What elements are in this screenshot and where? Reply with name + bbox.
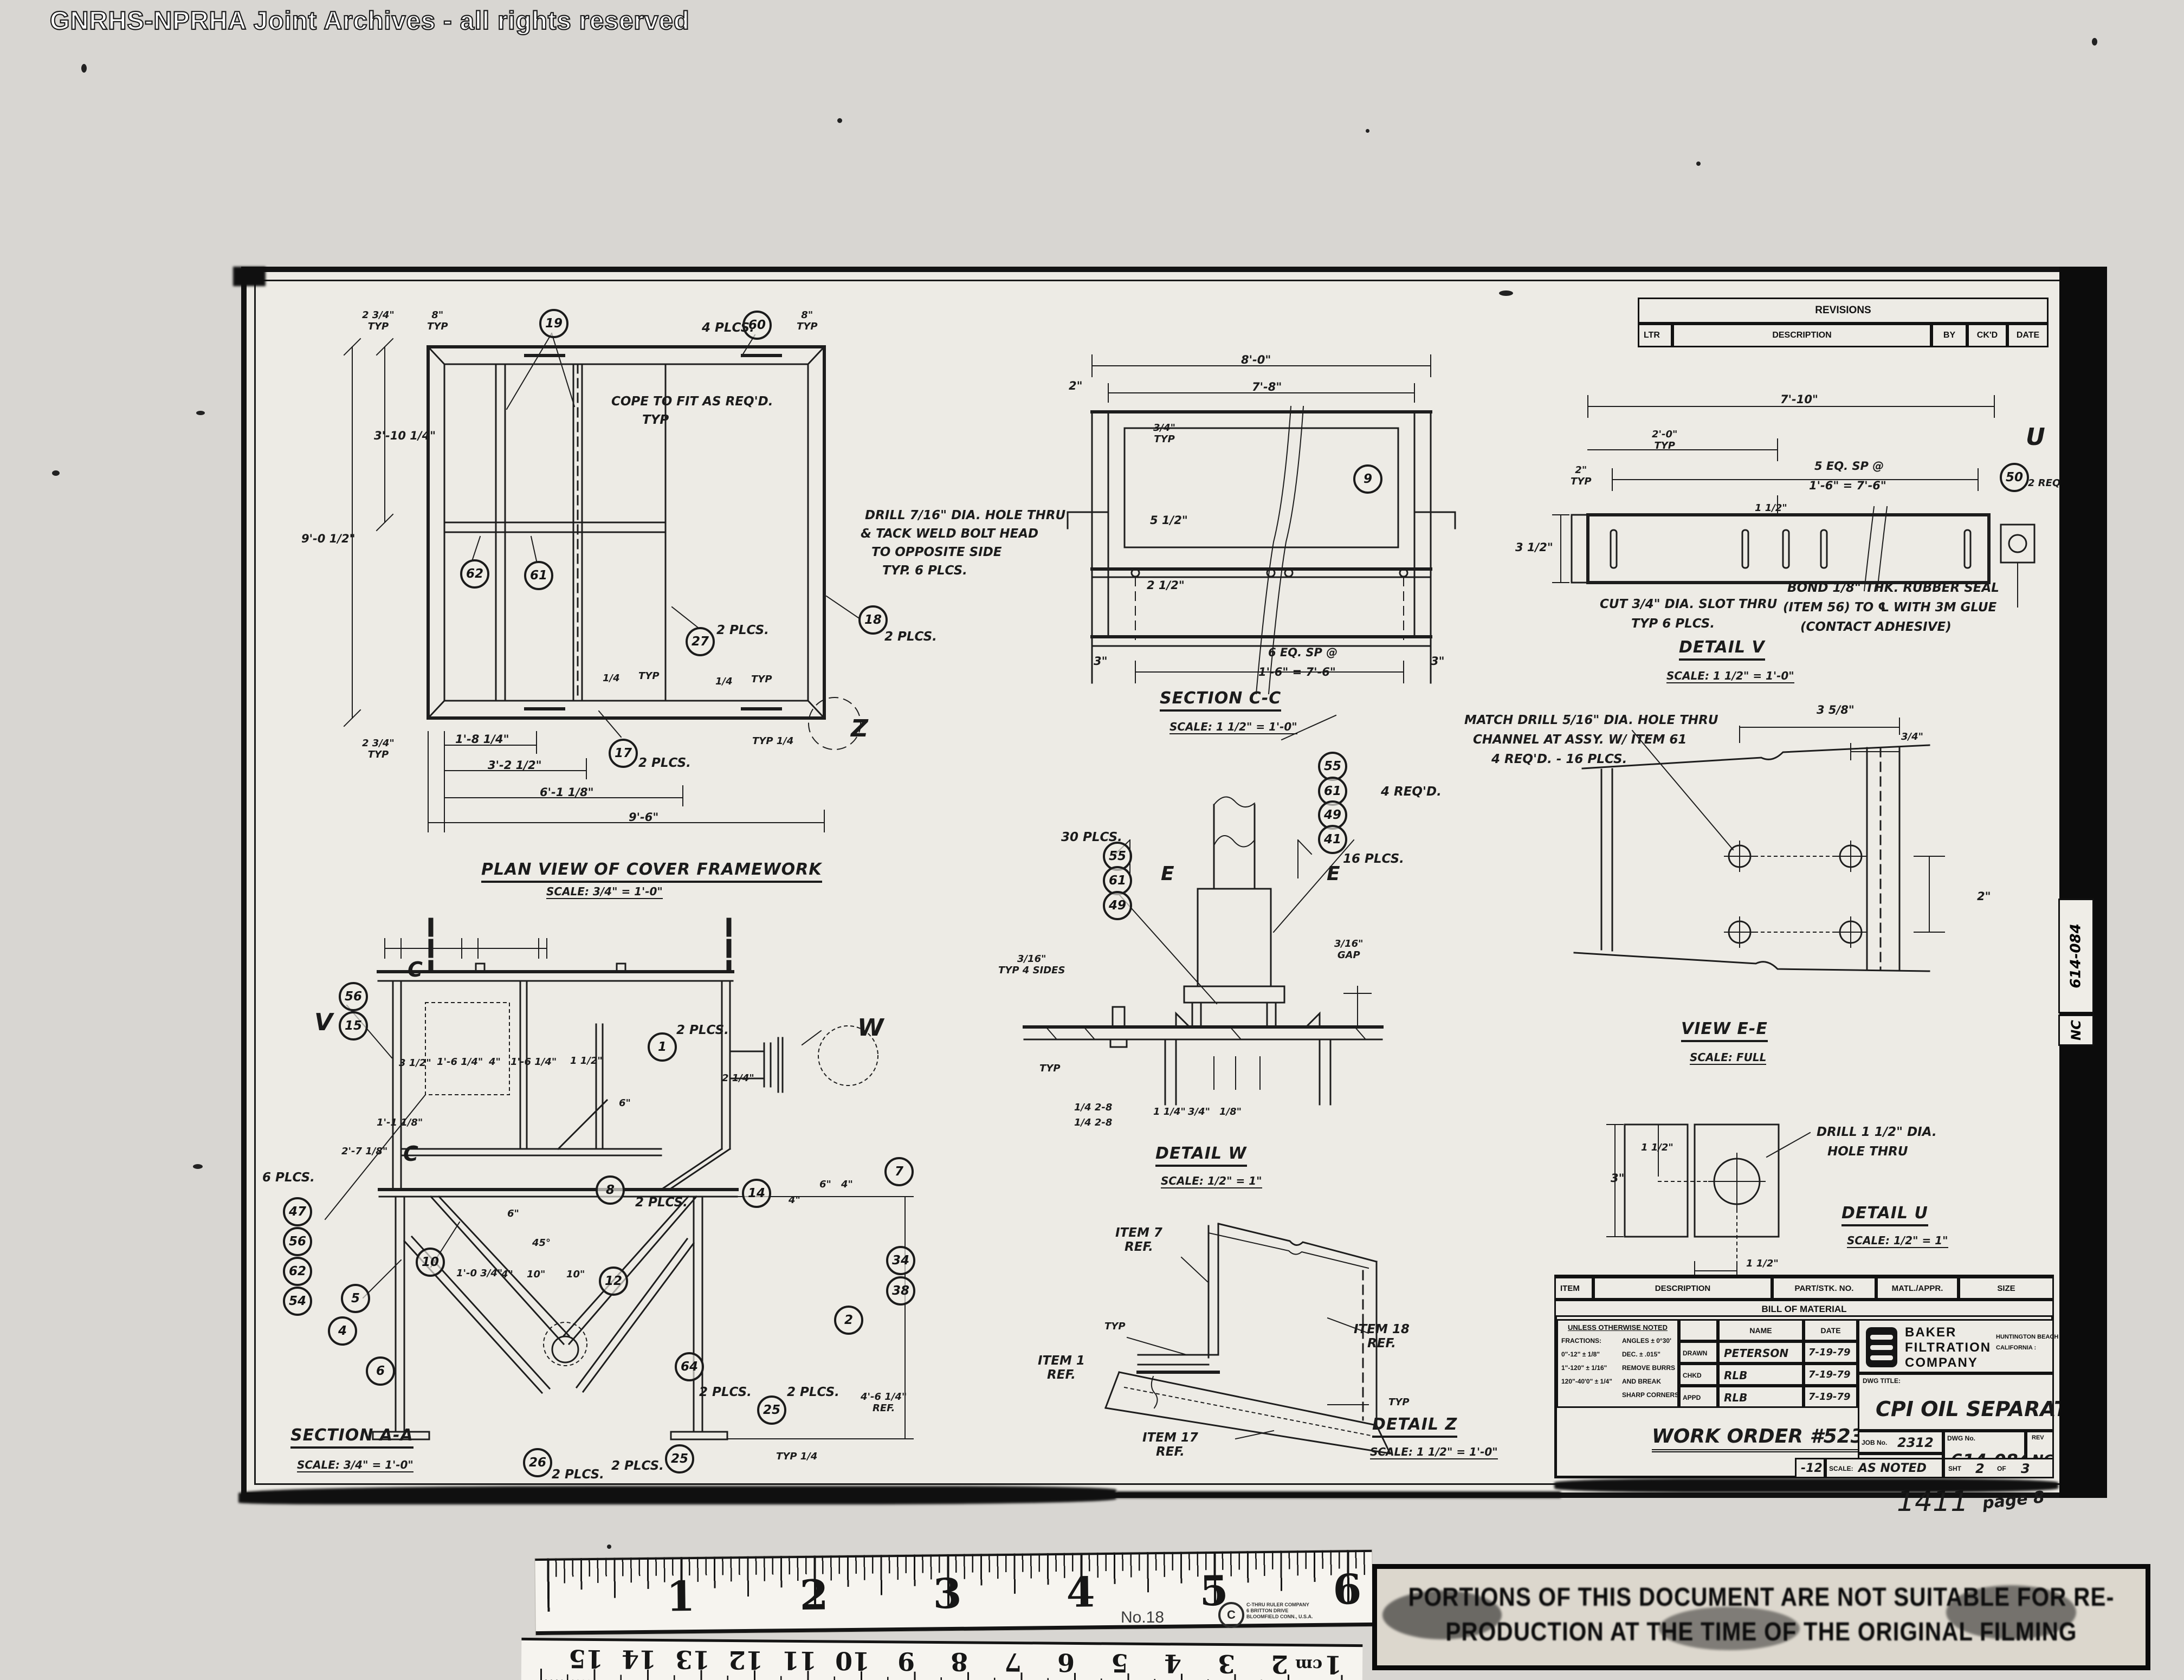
balloon-50-num: 50 xyxy=(2006,470,2023,484)
archive-watermark: GNRHS-NPRHA Joint Archives - all rights … xyxy=(50,5,690,35)
section-aa-caption: SECTION A-A xyxy=(290,1426,413,1449)
drawn-label: DRAWN xyxy=(1683,1349,1707,1357)
label-2plcs: 2 PLCS. xyxy=(699,1385,752,1399)
balloon-64: 64 xyxy=(675,1352,704,1381)
dim: 9'-0 1/2" xyxy=(301,532,356,545)
detail-v-scale: SCALE: 1 1/2" = 1'-0" xyxy=(1666,670,1794,683)
weld-label: TYP 1/4 xyxy=(752,736,793,747)
balloon-26-num: 26 xyxy=(529,1456,546,1470)
edge-dwg-number-text: 614-084 xyxy=(2068,923,2084,988)
balloon-18-num: 18 xyxy=(864,613,882,627)
sht-value: 2 xyxy=(1975,1462,1985,1477)
edge-rev: NC xyxy=(2058,1015,2094,1046)
speck xyxy=(837,118,842,123)
grid-drawn: DRAWN xyxy=(1679,1341,1718,1364)
dim: 45° xyxy=(532,1238,551,1249)
cthru-company-text: C-THRU RULER COMPANY 6 BRITTON DRIVE BLO… xyxy=(1246,1602,1313,1619)
dim: 6" xyxy=(507,1209,519,1220)
dim: 4" xyxy=(789,1195,800,1206)
scale-box: SCALE: AS NOTED xyxy=(1825,1458,1943,1478)
dim: 10" xyxy=(566,1269,585,1281)
company-city: HUNTINGTON BEACH xyxy=(1996,1334,2058,1340)
scan-smear xyxy=(1554,1478,2058,1492)
grid-appd-date: 7-19-79 xyxy=(1804,1386,1858,1408)
grid-appd-name: RLB xyxy=(1718,1386,1804,1408)
balloon-47-num: 47 xyxy=(289,1205,306,1219)
dim: 6" xyxy=(619,1098,631,1109)
balloon-55b-num: 55 xyxy=(1324,759,1341,773)
balloon-14-num: 14 xyxy=(748,1186,765,1200)
balloon-15: 15 xyxy=(339,1011,368,1041)
balloon-61-num: 61 xyxy=(1109,874,1126,888)
inch-1: 1 xyxy=(664,1572,697,1621)
balloon-41-num: 41 xyxy=(1324,832,1341,847)
balloon-2: 2 xyxy=(834,1306,863,1335)
weld-typ: TYP xyxy=(1388,1397,1410,1408)
label-2plcs: 2 PLCS. xyxy=(787,1385,839,1399)
item1-label: ITEM 1REF. xyxy=(1038,1354,1085,1382)
tolerance-box: UNLESS OTHERWISE NOTED FRACTIONS: ANGLES… xyxy=(1556,1319,1679,1408)
col-ckd: CK'D xyxy=(1977,331,1998,340)
balloon-54-num: 54 xyxy=(289,1294,306,1308)
balloon-61-num: 61 xyxy=(530,568,547,583)
dim: 2" xyxy=(1069,379,1083,392)
dim: 1'-1 1/8" xyxy=(377,1117,423,1129)
bom-col-size: SIZE xyxy=(1959,1277,2054,1300)
col-by: BY xyxy=(1943,331,1955,340)
balloon-38: 38 xyxy=(886,1276,915,1306)
cut-note-line2: TYP 6 PLCS. xyxy=(1631,617,1715,631)
drill-note-line4: TYP. 6 PLCS. xyxy=(882,564,967,578)
note-cope-typ: TYP xyxy=(642,413,669,427)
bond-note-line2: (ITEM 56) TO ℄ WITH 3M GLUE xyxy=(1783,600,1996,615)
revisions-header: REVISIONS xyxy=(1638,298,2049,324)
balloon-19: 19 xyxy=(539,309,568,338)
cthru-line3: BLOOMFIELD CONN., U.S.A. xyxy=(1246,1614,1313,1620)
speck xyxy=(1499,290,1513,296)
margin-note: -12 xyxy=(1801,1462,1823,1475)
scan-smear xyxy=(233,267,266,286)
balloon-56: 56 xyxy=(339,982,368,1011)
balloon-12: 12 xyxy=(599,1267,628,1296)
note-cope: COPE TO FIT AS REQ'D. xyxy=(611,395,773,409)
weld-typ: TYP xyxy=(1039,1063,1061,1075)
revisions-col-desc: DESCRIPTION xyxy=(1672,324,1931,347)
dim: 1/8" xyxy=(1219,1107,1242,1118)
balloon-7-num: 7 xyxy=(895,1165,903,1179)
dwg-title-box: DWG TITLE: CPI OIL SEPARATOR xyxy=(1858,1373,2054,1431)
dim: 7'-10" xyxy=(1780,393,1818,406)
appd-label: APPD xyxy=(1683,1394,1701,1401)
revisions-col-ltr: LTR xyxy=(1638,324,1672,347)
dim: 6" xyxy=(819,1179,831,1191)
scanned-drawing-page: GNRHS-NPRHA Joint Archives - all rights … xyxy=(0,0,2184,1680)
revisions-title: REVISIONS xyxy=(1815,305,1871,316)
col-date: DATE xyxy=(2017,331,2039,340)
balloon-14: 14 xyxy=(742,1179,771,1208)
dim: 2'-7 1/8" xyxy=(341,1146,387,1158)
drawn-name: PETERSON xyxy=(1724,1347,1788,1360)
dim: 2'-0"TYP xyxy=(1652,429,1677,451)
chkd-label: CHKD xyxy=(1683,1372,1702,1379)
edge-rev-text: NC xyxy=(2069,1020,2084,1041)
inch-6: 6 xyxy=(1331,1565,1364,1614)
tol-fractions: FRACTIONS: xyxy=(1561,1337,1601,1345)
balloon-56b-num: 56 xyxy=(289,1235,306,1249)
balloon-62b: 62 xyxy=(283,1257,312,1286)
inch-ruler: 1 2 3 4 5 6 xyxy=(535,1550,1372,1635)
dim: 1'-6 1/4" xyxy=(511,1057,557,1068)
balloon-27-num: 27 xyxy=(692,635,709,649)
appd-date: 7-19-79 xyxy=(1808,1392,1851,1403)
label-6plcs: 6 PLCS. xyxy=(262,1171,315,1185)
view-ee-scale: SCALE: FULL xyxy=(1690,1051,1766,1065)
balloon-49: 49 xyxy=(1103,891,1132,920)
view-arrow-e-right: E xyxy=(1327,863,1340,885)
label-2plcs: 2 PLCS. xyxy=(611,1459,664,1473)
bom-title-row: BILL OF MATERIAL xyxy=(1554,1300,2054,1317)
section-cc-scale: SCALE: 1 1/2" = 1'-0" xyxy=(1169,721,1297,734)
dim: 6'-1 1/8" xyxy=(540,786,594,799)
dim: 1 1/2" xyxy=(1746,1258,1779,1270)
drill-note-line2: & TACK WELD BOLT HEAD xyxy=(861,527,1038,541)
balloon-10-num: 10 xyxy=(422,1255,439,1269)
balloon-9-num: 9 xyxy=(1364,472,1372,486)
detail-z-caption: DETAIL Z xyxy=(1372,1416,1457,1438)
balloon-27: 27 xyxy=(686,627,715,656)
drill-note-line3: TO OPPOSITE SIDE xyxy=(871,545,1002,559)
weld-size: 1/4 2-8 xyxy=(1074,1117,1112,1129)
match-drill-note-line1: MATCH DRILL 5/16" DIA. HOLE THRU xyxy=(1464,713,1718,727)
speck xyxy=(607,1545,611,1549)
balloon-61: 61 xyxy=(524,561,553,590)
dim: 6 EQ. SP @ xyxy=(1268,646,1337,659)
dim: 3'-2 1/2" xyxy=(488,759,542,772)
name-header: NAME xyxy=(1749,1326,1772,1335)
balloon-64-num: 64 xyxy=(681,1360,698,1374)
balloon-17-num: 17 xyxy=(615,746,632,760)
weld-typ: TYP xyxy=(1104,1321,1126,1333)
centimeter-ruler: 15 14 13 12 11 10 9 8 7 6 5 4 3 2 cm 1 xyxy=(521,1638,1363,1680)
balloon-1: 1 xyxy=(648,1032,677,1062)
section-mark-z: Z xyxy=(851,715,868,743)
balloon-2-num: 2 xyxy=(844,1313,853,1327)
balloon-9: 9 xyxy=(1353,464,1382,494)
label-2plcs: 2 PLCS. xyxy=(635,1196,688,1210)
balloon-54: 54 xyxy=(283,1287,312,1316)
balloon-7: 7 xyxy=(884,1157,914,1186)
plan-view-drawing xyxy=(293,303,900,910)
bom-size-label: SIZE xyxy=(1997,1284,2015,1293)
col-ltr: LTR xyxy=(1644,331,1660,340)
dim: 2" xyxy=(1977,890,1991,903)
balloon-8-num: 8 xyxy=(606,1183,615,1197)
grid-appd: APPD xyxy=(1679,1386,1718,1408)
dim: 4" xyxy=(501,1269,513,1281)
label-2plcs: 2 PLCS. xyxy=(676,1023,729,1037)
dim: 3'-10 1/4" xyxy=(374,429,436,442)
dim: 1 1/4" xyxy=(1153,1107,1186,1118)
balloon-10: 10 xyxy=(416,1248,445,1277)
dim: 1'-6" = 7'-6" xyxy=(1258,665,1336,679)
inch-4: 4 xyxy=(1064,1568,1097,1617)
grid-drawn-date: 7-19-79 xyxy=(1804,1341,1858,1364)
detail-z-scale: SCALE: 1 1/2" = 1'-0" xyxy=(1370,1446,1498,1459)
balloon-6-num: 6 xyxy=(376,1364,385,1378)
dim: 4" xyxy=(489,1057,501,1068)
label-4reqd: 4 REQ'D. xyxy=(1381,785,1442,799)
balloon-5-num: 5 xyxy=(351,1291,360,1306)
dim: 1 1/2" xyxy=(1755,503,1787,514)
drill-note-line1: DRILL 7/16" DIA. HOLE THRU xyxy=(865,508,1065,522)
bom-item-label: ITEM xyxy=(1560,1284,1580,1293)
dim: 7'-8" xyxy=(1252,380,1282,393)
balloon-61b-num: 61 xyxy=(1324,784,1341,798)
plan-view-caption: PLAN VIEW OF COVER FRAMEWORK xyxy=(481,861,822,883)
scan-edge-band xyxy=(2059,267,2107,1498)
balloon-4: 4 xyxy=(328,1316,357,1346)
tol-corners: SHARP CORNERS xyxy=(1622,1391,1679,1399)
sheet-box: SHT 2 OF 3 xyxy=(1943,1458,2054,1478)
col-desc: DESCRIPTION xyxy=(1772,331,1831,340)
detail-mark-v: V xyxy=(314,1009,333,1037)
dim: 1'-6" = 7'-6" xyxy=(1809,479,1886,492)
dim: 2 1/2" xyxy=(1147,579,1185,592)
balloon-62-num: 62 xyxy=(466,567,483,581)
scale-value: AS NOTED xyxy=(1858,1462,1927,1475)
dim: 3" xyxy=(1611,1172,1625,1185)
bom-title: BILL OF MATERIAL xyxy=(1761,1304,1846,1315)
job-label: JOB No. xyxy=(1862,1439,1887,1446)
balloon-49-num: 49 xyxy=(1109,899,1126,913)
label-2plcs: 2 PLCS. xyxy=(884,630,937,644)
tol-row4: 120"-40'0" ± 1/4" xyxy=(1561,1378,1612,1385)
dim: 4" xyxy=(841,1179,853,1191)
section-mark-c-bottom: C xyxy=(403,1142,418,1166)
drill-note-line1: DRILL 1 1/2" DIA. xyxy=(1817,1125,1937,1139)
label-2plcs: 2 PLCS. xyxy=(638,756,691,770)
scan-smear xyxy=(1116,1491,1561,1498)
balloon-25: 25 xyxy=(757,1395,786,1425)
balloon-56b: 56 xyxy=(283,1227,312,1256)
balloon-6: 6 xyxy=(366,1356,395,1386)
bom-desc-label: DESCRIPTION xyxy=(1655,1284,1711,1293)
rev-label: REV xyxy=(2032,1435,2044,1441)
stamp-smudge xyxy=(1382,1591,1502,1639)
detail-mark-w: W xyxy=(857,1015,884,1042)
company-name-2: FILTRATION xyxy=(1905,1340,1991,1355)
label-2plcs: 2 PLCS. xyxy=(716,623,769,637)
balloon-50: 50 xyxy=(2000,463,2029,492)
dim-ref: 4'-6 1/4"REF. xyxy=(861,1392,907,1414)
speck xyxy=(193,1164,203,1169)
tol-break: AND BREAK xyxy=(1622,1378,1661,1385)
grid-name-h: NAME xyxy=(1718,1319,1804,1341)
balloon-17: 17 xyxy=(609,739,638,768)
speck xyxy=(196,411,205,415)
balloon-25b: 25 xyxy=(665,1444,694,1474)
dim: 1'-0 3/4" xyxy=(456,1268,502,1280)
balloon-34: 34 xyxy=(886,1246,915,1275)
balloon-1-num: 1 xyxy=(658,1040,667,1054)
grid-chkd-date: 7-19-79 xyxy=(1804,1364,1858,1386)
balloon-12-num: 12 xyxy=(605,1274,622,1288)
bom-col-part: PART/STK. NO. xyxy=(1772,1277,1876,1300)
revisions-col-date: DATE xyxy=(2007,324,2049,347)
weld-note: 3/16"TYP 4 SIDES xyxy=(998,954,1065,976)
grid-drawn-name: PETERSON xyxy=(1718,1341,1804,1364)
gap-dim: 3/16"GAP xyxy=(1334,939,1364,961)
tol-row2: 0"-12" ± 1/8" xyxy=(1561,1351,1600,1358)
speck xyxy=(1696,161,1701,166)
view-ee-caption: VIEW E-E xyxy=(1681,1020,1768,1042)
cthru-logo: C xyxy=(1218,1602,1244,1628)
speck xyxy=(2092,38,2097,46)
speck xyxy=(1366,129,1369,133)
tol-burrs: REMOVE BURRS xyxy=(1622,1364,1675,1372)
of-value: 3 xyxy=(2021,1462,2030,1477)
dim: 1'-6 1/4" xyxy=(437,1057,483,1068)
company-name-1: BAKER xyxy=(1905,1325,1956,1340)
cthru-line2: 6 BRITTON DRIVE xyxy=(1246,1608,1313,1614)
balloon-5: 5 xyxy=(341,1284,370,1313)
stamp-smudge xyxy=(1946,1585,2076,1639)
grid-blank xyxy=(1679,1319,1718,1341)
inch-3: 3 xyxy=(931,1569,964,1618)
balloon-25-num: 25 xyxy=(763,1403,780,1417)
job-number: 2312 xyxy=(1897,1436,1934,1451)
grid-date-h: DATE xyxy=(1804,1319,1858,1341)
balloon-26: 26 xyxy=(523,1448,552,1477)
weld-label: 1/4 xyxy=(715,676,733,688)
cut-note-line1: CUT 3/4" DIA. SLOT THRU xyxy=(1600,597,1777,611)
dim: 2 3/4"TYP xyxy=(362,738,395,760)
section-cc-caption: SECTION C-C xyxy=(1160,689,1281,712)
dwg-title-label: DWG TITLE: xyxy=(1863,1377,1901,1385)
bom-matl-label: MATL./APPR. xyxy=(1892,1284,1943,1293)
detail-w-caption: DETAIL W xyxy=(1155,1145,1247,1167)
dim: 8'-0" xyxy=(1241,353,1271,366)
balloon-47: 47 xyxy=(283,1197,312,1226)
balloon-56-num: 56 xyxy=(345,990,362,1004)
weld-label: TYP xyxy=(638,671,660,682)
inch-2: 2 xyxy=(798,1571,831,1619)
dim: 3 5/8" xyxy=(1817,703,1855,716)
balloon-15-num: 15 xyxy=(345,1019,362,1033)
plan-view-scale: SCALE: 3/4" = 1'-0" xyxy=(546,886,663,899)
label-4plcs: 4 PLCS. xyxy=(702,321,754,335)
weld-label: TYP 1/4 xyxy=(776,1451,817,1463)
sht-label: SHT xyxy=(1948,1465,1961,1472)
balloon-62: 62 xyxy=(460,559,489,589)
dim: 8"TYP xyxy=(797,310,818,332)
balloon-41: 41 xyxy=(1318,825,1347,854)
dim: 1'-8 1/4" xyxy=(455,733,509,746)
reproduction-stamp: PORTIONS OF THIS DOCUMENT ARE NOT SUITAB… xyxy=(1372,1564,2150,1670)
date-header: DATE xyxy=(1820,1326,1840,1335)
uon-label: UNLESS OTHERWISE NOTED xyxy=(1568,1323,1668,1332)
speck xyxy=(52,470,60,476)
weld-label: 1/4 xyxy=(603,673,620,684)
match-drill-note-line3: 4 REQ'D. - 16 PLCS. xyxy=(1491,752,1627,766)
company-name-3: COMPANY xyxy=(1905,1355,1978,1371)
bom-col-desc: DESCRIPTION xyxy=(1593,1277,1772,1300)
dim: 3 1/2" xyxy=(1515,541,1553,554)
appd-name: RLB xyxy=(1724,1392,1747,1404)
dim: 3 1/2" xyxy=(399,1058,431,1069)
dim: 5 EQ. SP @ xyxy=(1814,460,1884,473)
company-block: BAKER FILTRATION COMPANY HUNTINGTON BEAC… xyxy=(1858,1319,2054,1373)
baker-logo xyxy=(1866,1327,1897,1367)
balloon-8: 8 xyxy=(596,1175,625,1205)
scan-smear xyxy=(238,1486,1116,1504)
detail-w-scale: SCALE: 1/2" = 1" xyxy=(1161,1175,1262,1188)
dim: 5 1/2" xyxy=(1150,514,1188,527)
balloon-19-num: 19 xyxy=(545,316,563,331)
of-label: OF xyxy=(1997,1465,2006,1472)
balloon-62b-num: 62 xyxy=(289,1264,306,1278)
dwg-no-label: DWG No. xyxy=(1947,1435,1975,1442)
section-aa-drawing xyxy=(314,916,954,1469)
tol-angles: ANGLES ± 0°30' xyxy=(1622,1337,1671,1345)
dim: 1 1/2" xyxy=(570,1056,603,1067)
balloon-4-num: 4 xyxy=(338,1324,347,1338)
detail-v-caption: DETAIL V xyxy=(1679,638,1765,661)
label-2plcs: 2 PLCS. xyxy=(552,1468,604,1482)
tol-row3: 1"-120" ± 1/16" xyxy=(1561,1364,1607,1372)
view-arrow-e-left: E xyxy=(1161,863,1174,885)
dim: 3" xyxy=(1431,655,1445,668)
ruler-model-number: No.18 xyxy=(1121,1608,1164,1627)
dim: 1 1/2" xyxy=(1641,1142,1673,1154)
chkd-name: RLB xyxy=(1724,1369,1747,1382)
stamp-smudge xyxy=(1659,1607,1800,1650)
drill-note-line2: HOLE THRU xyxy=(1827,1145,1908,1159)
grid-chkd: CHKD xyxy=(1679,1364,1718,1386)
dim: 9'-6" xyxy=(629,811,658,824)
bond-note-line3: (CONTACT ADHESIVE) xyxy=(1800,620,1952,634)
dim: 8"TYP xyxy=(427,310,448,332)
drawn-date: 7-19-79 xyxy=(1808,1347,1851,1359)
detail-u-caption: DETAIL U xyxy=(1841,1204,1928,1226)
balloon-49b-num: 49 xyxy=(1324,808,1341,822)
company-state: CALIFORNIA : xyxy=(1996,1345,2036,1351)
section-aa-scale: SCALE: 3/4" = 1'-0" xyxy=(297,1459,413,1472)
margin-note-box: -12 xyxy=(1795,1458,1825,1478)
dim: 2"TYP xyxy=(1571,465,1592,487)
tol-dec: DEC. ± .015" xyxy=(1622,1351,1660,1358)
dim: 3/4" xyxy=(1188,1107,1210,1118)
balloon-38-num: 38 xyxy=(892,1284,909,1298)
dim: 3/4"TYP xyxy=(1153,423,1175,445)
detail-u-scale: SCALE: 1/2" = 1" xyxy=(1847,1235,1948,1248)
job-box: JOB No. 2312 xyxy=(1858,1431,1943,1453)
item7-label: ITEM 7REF. xyxy=(1115,1226,1162,1255)
bom-col-item: ITEM xyxy=(1554,1277,1593,1300)
bom-col-matl: MATL./APPR. xyxy=(1876,1277,1959,1300)
match-drill-note-line2: CHANNEL AT ASSY. W/ ITEM 61 xyxy=(1473,733,1687,747)
dim: 3" xyxy=(1094,655,1108,668)
scale-label: SCALE: xyxy=(1829,1465,1853,1472)
revisions-col-ckd: CK'D xyxy=(1967,324,2007,347)
label-16plcs: 16 PLCS. xyxy=(1343,852,1404,866)
item17-label: ITEM 17REF. xyxy=(1142,1431,1198,1459)
bom-part-label: PART/STK. NO. xyxy=(1795,1284,1854,1293)
weld-label: TYP xyxy=(751,674,772,686)
work-order: WORK ORDER #5232 xyxy=(1652,1425,1878,1452)
section-mark-c-top: C xyxy=(408,958,423,982)
dim: 10" xyxy=(527,1269,545,1281)
